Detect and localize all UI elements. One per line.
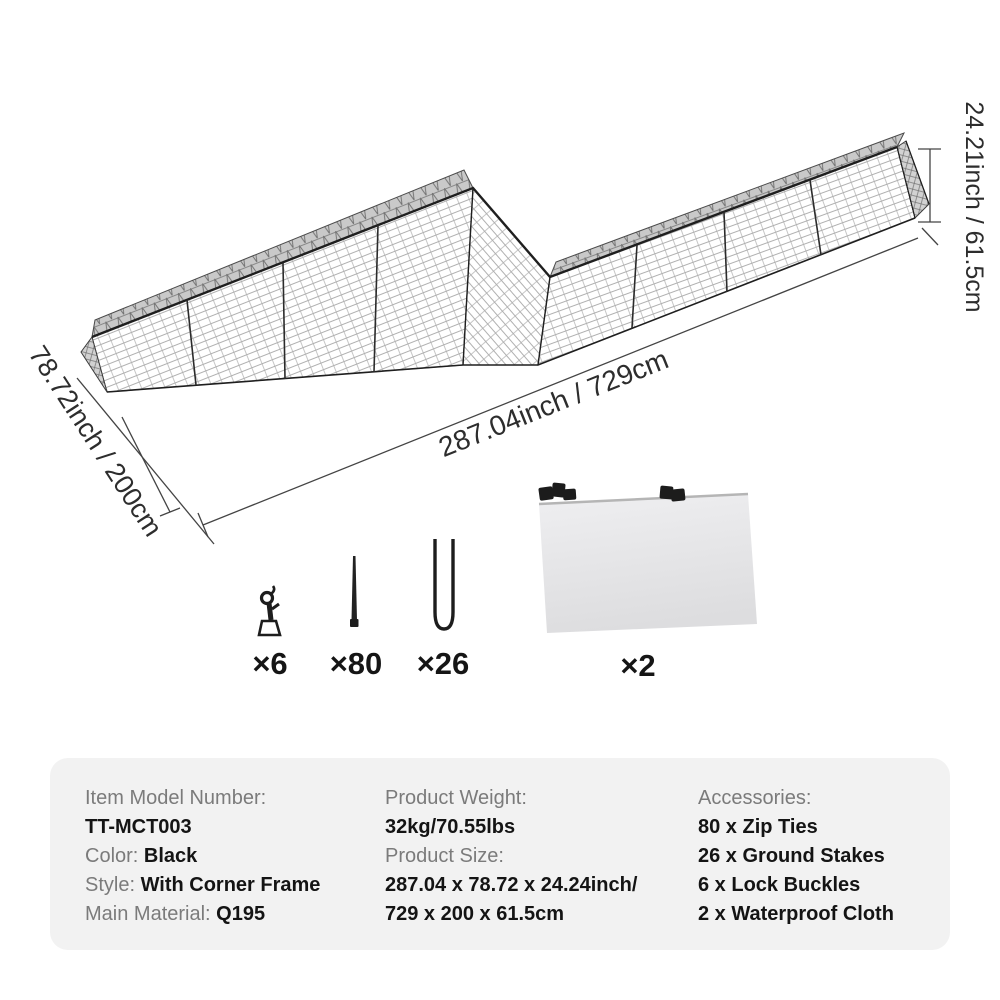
specs-column-model: Item Model Number: TT-MCT003 Color: Blac… xyxy=(85,784,320,929)
spec-line: 26 x Ground Stakes xyxy=(698,842,894,871)
snap-hook-count: ×6 xyxy=(252,646,287,681)
mesh-structure xyxy=(81,133,929,392)
mesh-wall-segment1 xyxy=(92,188,473,392)
spec-line: 287.04 x 78.72 x 24.24inch/ xyxy=(385,871,637,900)
specs-panel: Item Model Number: TT-MCT003 Color: Blac… xyxy=(50,758,950,950)
mesh-wall-segment2 xyxy=(463,188,550,365)
spec-line: Main Material: Q195 xyxy=(85,900,320,929)
waterproof-cloth-count: ×2 xyxy=(620,648,655,683)
ground-stake-count: ×26 xyxy=(417,646,470,681)
ground-stake-icon xyxy=(435,539,453,629)
spec-line: Accessories: xyxy=(698,784,894,813)
specs-column-size: Product Weight: 32kg/70.55lbs Product Si… xyxy=(385,784,637,929)
spec-line: 2 x Waterproof Cloth xyxy=(698,900,894,929)
accessories-row: ×6 ×80 ×26 ×2 xyxy=(252,482,757,683)
zip-tie-count: ×80 xyxy=(330,646,383,681)
height-dimension-label: 24.21inch / 61.5cm xyxy=(960,101,988,312)
product-image: 78.72inch / 200cm 287.04inch / 729cm 24.… xyxy=(0,0,1000,1000)
spec-line: Product Size: xyxy=(385,842,637,871)
snap-hook-icon xyxy=(259,586,280,635)
waterproof-cloth-icon xyxy=(538,482,757,633)
zip-tie-icon xyxy=(350,556,359,627)
spec-line: Style: With Corner Frame xyxy=(85,871,320,900)
specs-column-accessories: Accessories: 80 x Zip Ties 26 x Ground S… xyxy=(698,784,894,929)
spec-line: Item Model Number: xyxy=(85,784,320,813)
spec-line: 729 x 200 x 61.5cm xyxy=(385,900,637,929)
mesh-run-diagram: 78.72inch / 200cm 287.04inch / 729cm 24.… xyxy=(0,0,1000,745)
spec-line: TT-MCT003 xyxy=(85,813,320,842)
spec-line: 32kg/70.55lbs xyxy=(385,813,637,842)
spec-line: Color: Black xyxy=(85,842,320,871)
spec-line: 80 x Zip Ties xyxy=(698,813,894,842)
spec-line: Product Weight: xyxy=(385,784,637,813)
spec-line: 6 x Lock Buckles xyxy=(698,871,894,900)
